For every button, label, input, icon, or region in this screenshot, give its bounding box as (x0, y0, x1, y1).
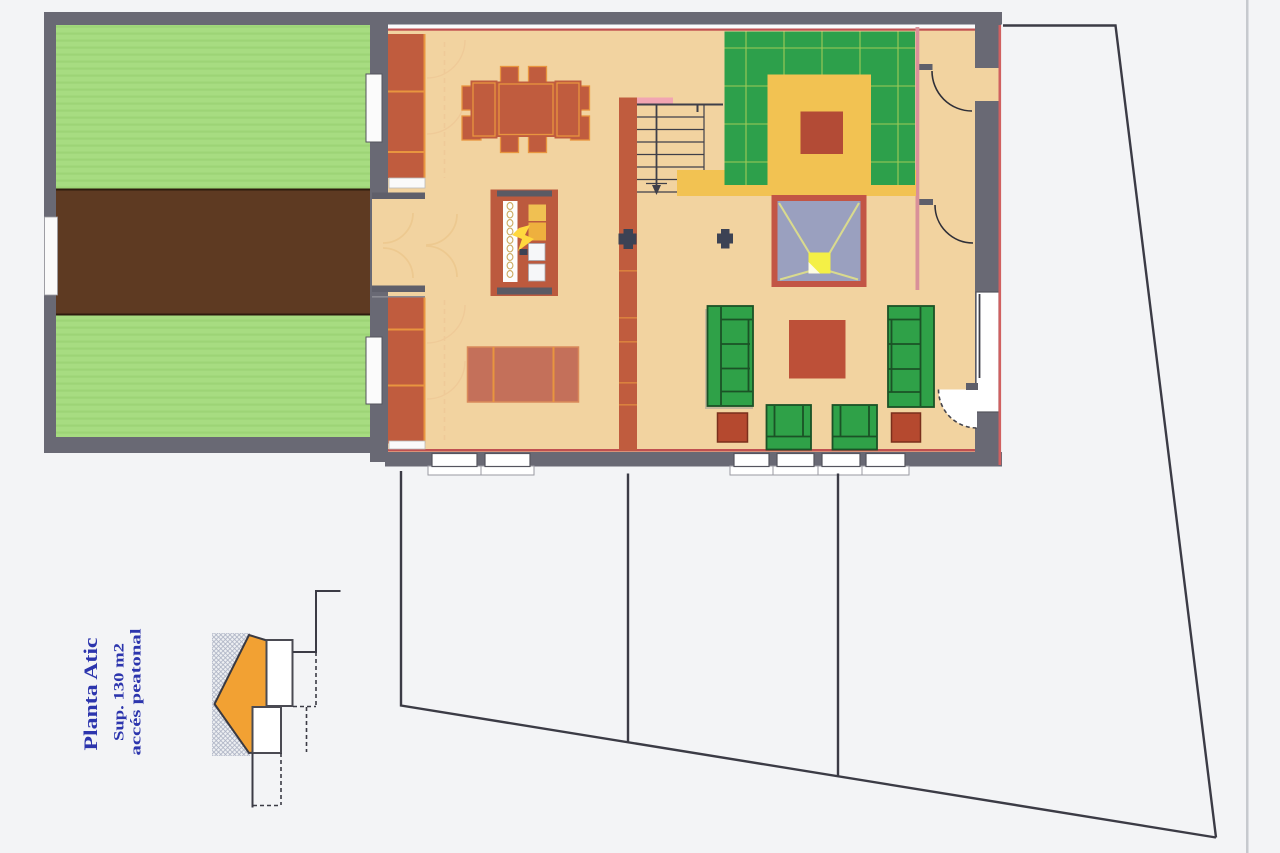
svg-text:Planta Atic: Planta Atic (81, 638, 102, 751)
svg-text:Sup. 130 m2: Sup. 130 m2 (112, 643, 128, 741)
svg-text:accés peatonal: accés peatonal (129, 629, 145, 756)
